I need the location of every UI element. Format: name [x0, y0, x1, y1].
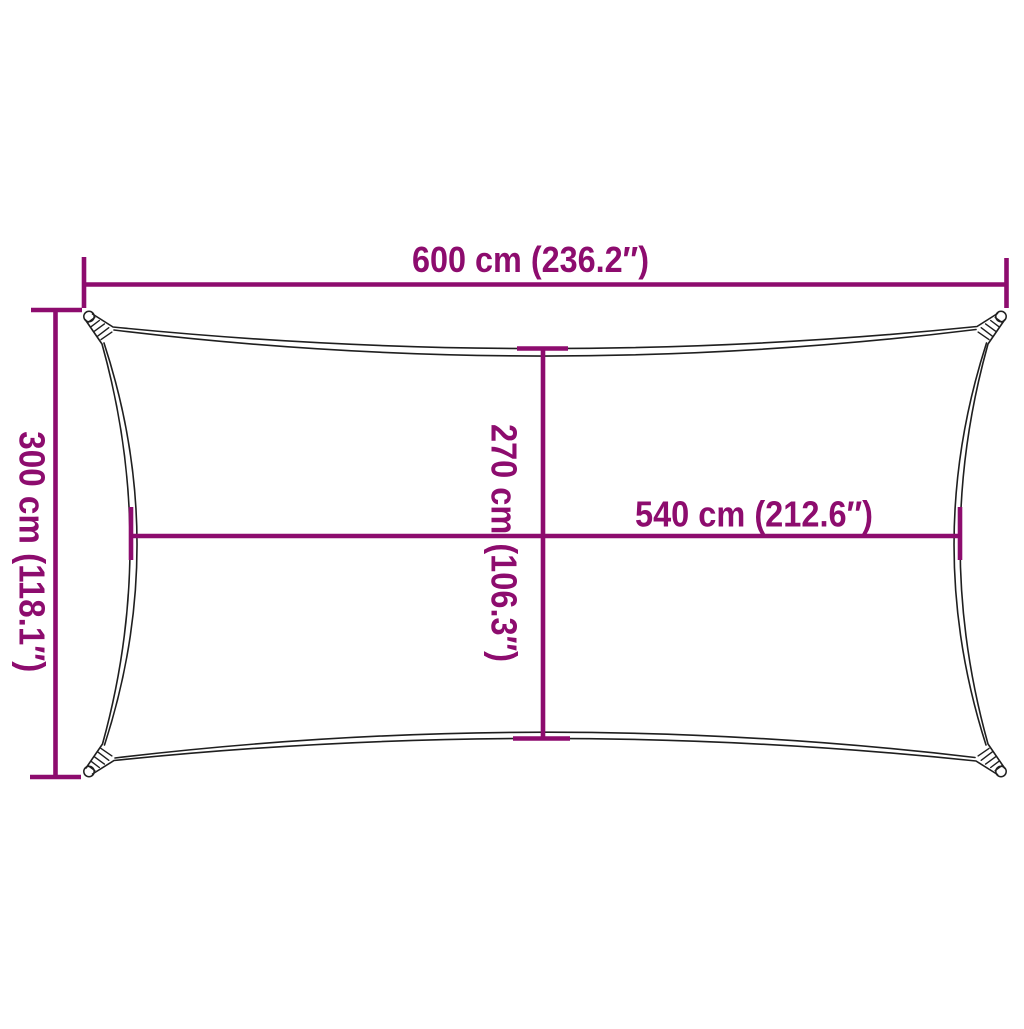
- svg-text:600 cm (236.2″): 600 cm (236.2″): [412, 239, 649, 280]
- svg-text:540 cm (212.6″): 540 cm (212.6″): [635, 494, 873, 535]
- svg-text:300 cm (118.1″): 300 cm (118.1″): [12, 431, 53, 672]
- svg-text:270 cm (106.3″): 270 cm (106.3″): [484, 424, 525, 662]
